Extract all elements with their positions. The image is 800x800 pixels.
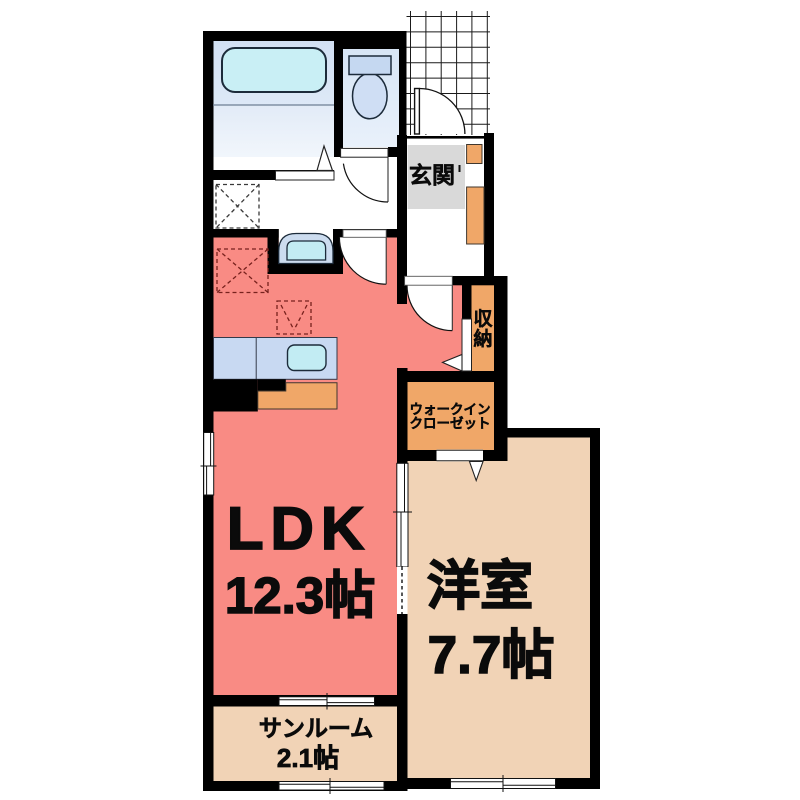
svg-text:LDK: LDK [227,495,371,562]
svg-text:クローゼット: クローゼット [410,415,491,431]
svg-text:洋室: 洋室 [427,557,533,616]
svg-text:納: 納 [473,327,492,350]
svg-text:7.7帖: 7.7帖 [428,626,555,685]
svg-text:12.3帖: 12.3帖 [225,567,375,624]
svg-text:玄関: 玄関 [409,162,455,188]
svg-text:ウォークイン: ウォークイン [410,402,491,417]
svg-text:2.1帖: 2.1帖 [277,743,339,773]
svg-text:サンルーム: サンルーム [259,715,373,741]
svg-text:収: 収 [473,308,493,330]
